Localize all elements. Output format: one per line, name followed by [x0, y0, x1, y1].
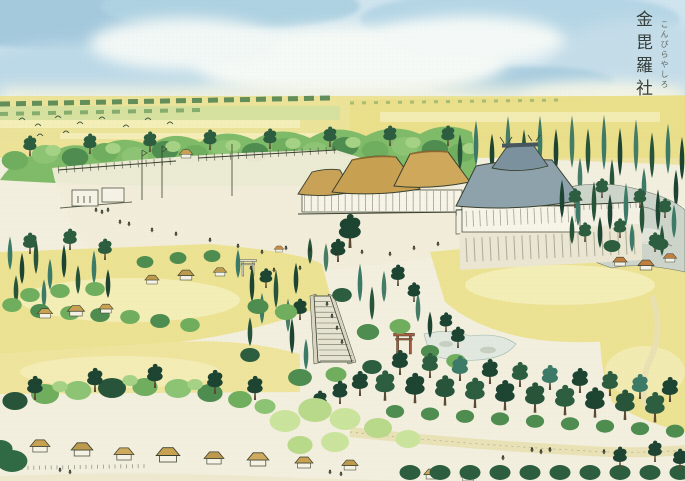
artwork-title-furigana: こんぴらやしろ — [659, 20, 670, 90]
landscape-illustration — [0, 0, 685, 481]
artwork-title: 金毘羅社 — [630, 10, 655, 102]
artwork-canvas: 金毘羅社 こんぴらやしろ — [0, 0, 685, 481]
paper-texture — [0, 0, 685, 481]
